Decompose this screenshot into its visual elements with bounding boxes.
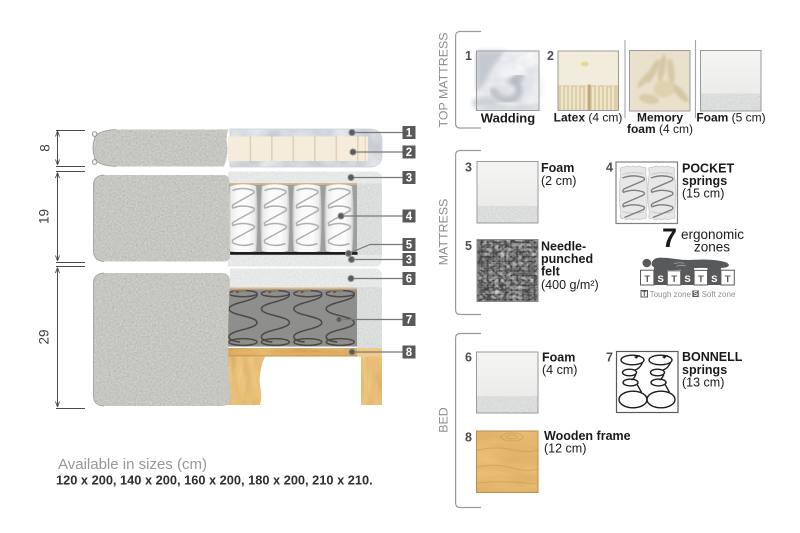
svg-text:felt: felt bbox=[541, 265, 561, 279]
svg-text:T: T bbox=[644, 274, 650, 285]
svg-text:5: 5 bbox=[406, 239, 413, 251]
svg-text:T: T bbox=[671, 274, 677, 285]
svg-text:1: 1 bbox=[406, 127, 413, 139]
svg-text:foam (4 cm): foam (4 cm) bbox=[627, 122, 693, 136]
svg-text:T: T bbox=[642, 291, 647, 298]
svg-text:Tough zone: Tough zone bbox=[650, 290, 692, 299]
svg-text:1: 1 bbox=[465, 49, 472, 63]
svg-text:BONNELL: BONNELL bbox=[682, 350, 743, 364]
svg-text:3: 3 bbox=[465, 161, 472, 175]
svg-text:T: T bbox=[698, 274, 704, 285]
svg-text:(15 cm): (15 cm) bbox=[682, 187, 724, 201]
svg-text:T: T bbox=[725, 274, 731, 285]
svg-text:6: 6 bbox=[465, 351, 472, 365]
svg-text:3: 3 bbox=[406, 172, 412, 184]
svg-text:Soft zone: Soft zone bbox=[702, 290, 736, 299]
svg-text:(2 cm): (2 cm) bbox=[541, 174, 576, 188]
svg-text:S: S bbox=[684, 274, 690, 285]
svg-text:7: 7 bbox=[662, 223, 677, 253]
svg-text:3: 3 bbox=[406, 254, 412, 266]
svg-text:(13 cm): (13 cm) bbox=[682, 376, 724, 390]
svg-text:2: 2 bbox=[547, 49, 554, 63]
svg-text:8: 8 bbox=[465, 431, 472, 445]
svg-text:S: S bbox=[711, 274, 717, 285]
svg-text:(400 g/m²): (400 g/m²) bbox=[541, 278, 599, 292]
svg-text:S: S bbox=[658, 274, 664, 285]
svg-text:120 x 200, 140 x 200, 160 x 20: 120 x 200, 140 x 200, 160 x 200, 180 x 2… bbox=[56, 473, 373, 488]
svg-text:MATTRESS: MATTRESS bbox=[436, 199, 450, 266]
svg-text:2: 2 bbox=[406, 147, 412, 159]
svg-text:Available in sizes (cm): Available in sizes (cm) bbox=[58, 456, 207, 473]
svg-text:6: 6 bbox=[406, 273, 412, 285]
svg-text:Wadding: Wadding bbox=[481, 111, 535, 126]
svg-text:(4 cm): (4 cm) bbox=[542, 363, 577, 377]
svg-text:BED: BED bbox=[436, 407, 450, 433]
svg-text:zones: zones bbox=[694, 240, 730, 255]
svg-text:Foam: Foam bbox=[541, 161, 574, 175]
svg-text:5: 5 bbox=[465, 239, 472, 253]
svg-text:Foam (5 cm): Foam (5 cm) bbox=[696, 111, 765, 125]
svg-text:29: 29 bbox=[37, 329, 52, 344]
svg-text:4: 4 bbox=[606, 161, 613, 175]
svg-text:TOP MATTRESS: TOP MATTRESS bbox=[436, 32, 450, 127]
svg-text:(12 cm): (12 cm) bbox=[544, 442, 586, 456]
svg-text:Latex (4 cm): Latex (4 cm) bbox=[554, 111, 623, 125]
svg-text:7: 7 bbox=[606, 351, 613, 365]
svg-text:7: 7 bbox=[406, 314, 412, 326]
svg-text:8: 8 bbox=[406, 347, 413, 359]
svg-text:4: 4 bbox=[406, 211, 413, 223]
svg-text:S: S bbox=[693, 291, 698, 298]
svg-text:8: 8 bbox=[38, 144, 53, 152]
svg-text:19: 19 bbox=[37, 209, 52, 224]
